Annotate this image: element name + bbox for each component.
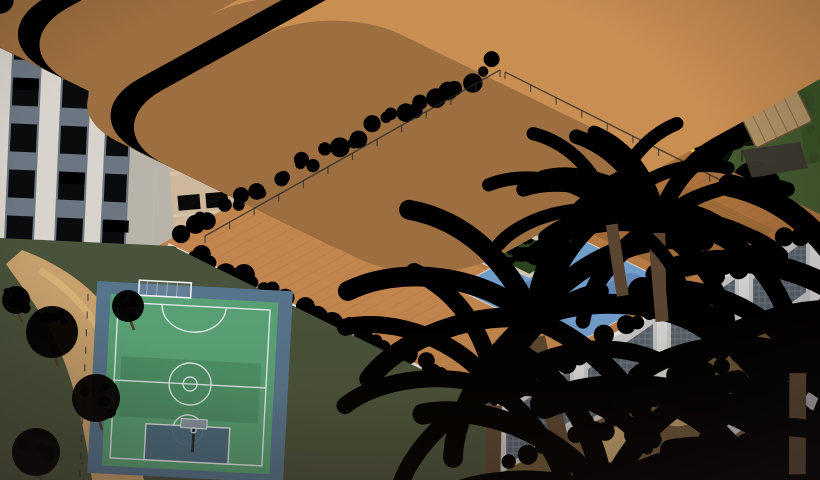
scene-canvas: [0, 0, 820, 480]
render-stage: [0, 0, 820, 480]
vignette-overlay: [0, 0, 820, 480]
